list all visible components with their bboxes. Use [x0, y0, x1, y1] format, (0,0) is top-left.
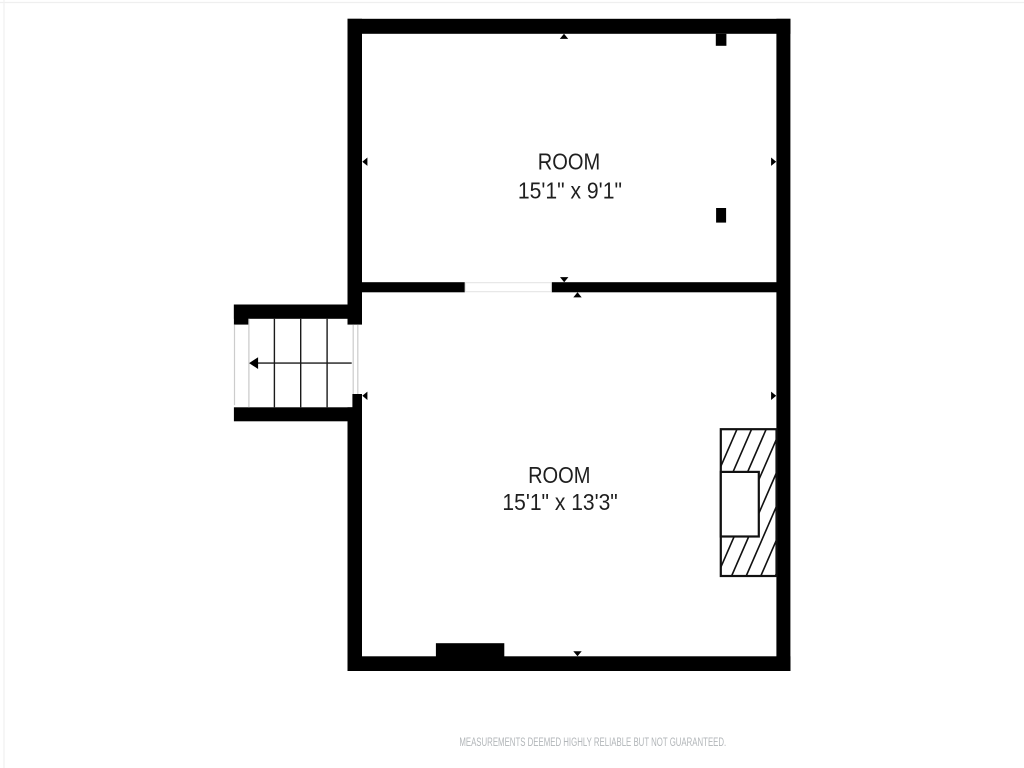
- svg-text:ROOM: ROOM: [528, 462, 590, 489]
- svg-text:ROOM: ROOM: [538, 148, 600, 175]
- svg-text:15'1" x 9'1": 15'1" x 9'1": [518, 178, 622, 204]
- svg-text:MEASUREMENTS DEEMED HIGHLY REL: MEASUREMENTS DEEMED HIGHLY RELIABLE BUT …: [459, 736, 726, 749]
- svg-text:15'1" x 13'3": 15'1" x 13'3": [502, 489, 617, 515]
